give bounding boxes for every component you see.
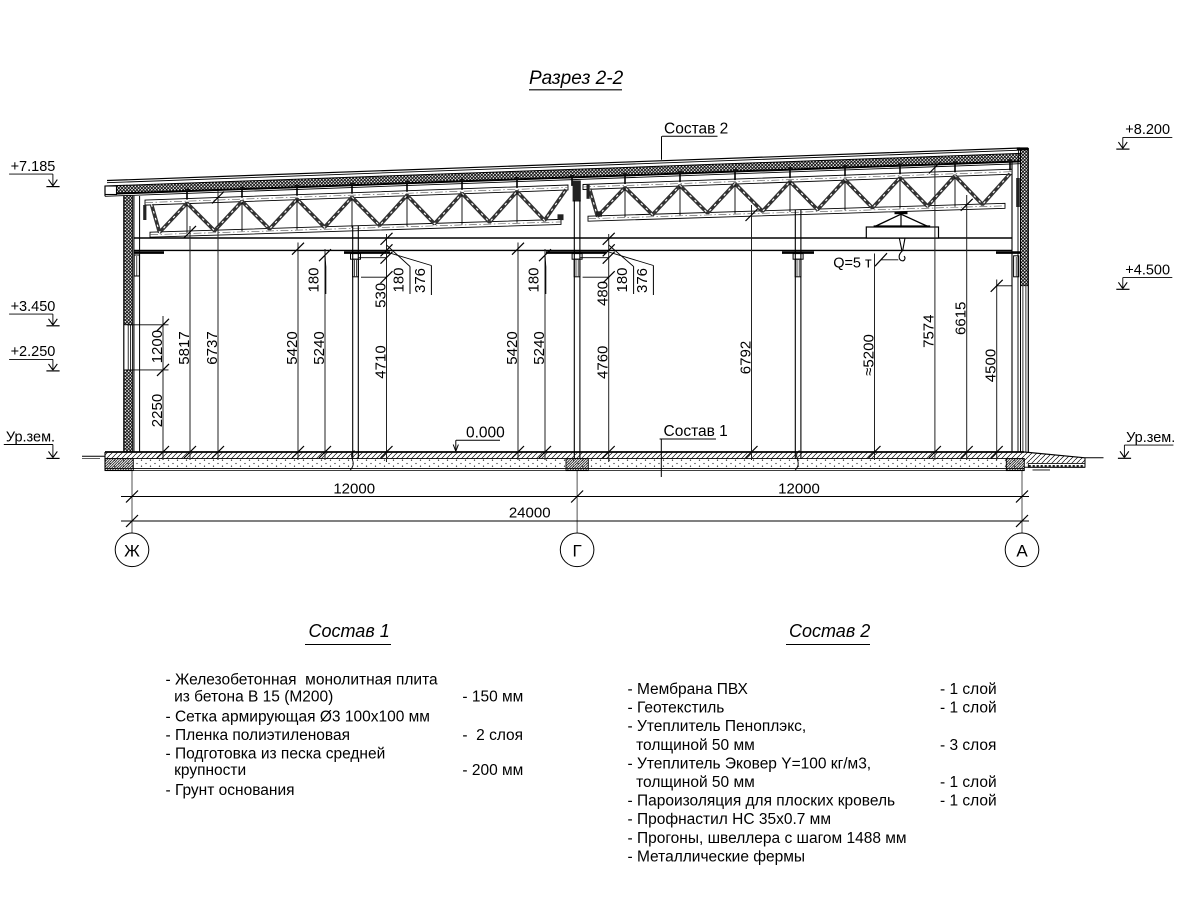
- svg-text:- Утеплитель Эковер Y=100 кг/м: - Утеплитель Эковер Y=100 кг/м3,: [628, 755, 872, 772]
- svg-text:- 3 слоя: - 3 слоя: [940, 737, 996, 754]
- svg-text:4500: 4500: [983, 349, 1000, 382]
- svg-text:480: 480: [595, 281, 612, 306]
- svg-text:Разрез 2-2: Разрез 2-2: [529, 68, 624, 89]
- svg-text:+8.200: +8.200: [1125, 122, 1170, 138]
- svg-text:- 1 слой: - 1 слой: [940, 774, 997, 791]
- svg-text:180: 180: [525, 267, 542, 292]
- svg-text:Состав 1: Состав 1: [309, 621, 390, 641]
- svg-text:Состав 1: Состав 1: [664, 423, 728, 440]
- svg-text:- 1 слой: - 1 слой: [940, 681, 997, 698]
- svg-text:+4.500: +4.500: [1125, 262, 1170, 278]
- svg-text:- Геотекстиль: - Геотекстиль: [628, 700, 725, 717]
- svg-text:Состав 2: Состав 2: [664, 120, 728, 137]
- svg-text:24000: 24000: [509, 504, 551, 521]
- svg-text:А: А: [1016, 541, 1028, 560]
- svg-text:Г: Г: [572, 541, 581, 560]
- svg-text:7574: 7574: [921, 315, 938, 348]
- svg-text:- 200 мм: - 200 мм: [462, 762, 523, 779]
- svg-text:376: 376: [634, 268, 651, 293]
- svg-text:- 1 слой: - 1 слой: [940, 700, 997, 717]
- svg-text:- Сетка армирующая Ø3 100х100: - Сетка армирующая Ø3 100х100 мм: [166, 709, 430, 726]
- svg-text:- Железобетонная монолитная п: - Железобетонная монолитная плита: [166, 671, 438, 688]
- svg-text:- Прогоны, швеллера с шагом 14: - Прогоны, швеллера с шагом 1488 мм: [628, 830, 907, 847]
- svg-text:180: 180: [390, 267, 407, 292]
- svg-text:5240: 5240: [531, 331, 548, 364]
- svg-text:530: 530: [372, 283, 389, 308]
- svg-text:Q=5 т: Q=5 т: [833, 255, 872, 271]
- svg-text:- Металлические фермы: - Металлические фермы: [628, 848, 806, 865]
- svg-text:1200: 1200: [149, 330, 166, 363]
- svg-text:толщиной 50 мм: толщиной 50 мм: [628, 737, 755, 754]
- svg-text:Состав 2: Состав 2: [789, 621, 870, 641]
- svg-text:- Пароизоляция для плоских кро: - Пароизоляция для плоских кровель: [628, 793, 896, 810]
- svg-text:2250: 2250: [149, 394, 166, 427]
- svg-text:+3.450: +3.450: [11, 299, 56, 315]
- svg-text:≈5200: ≈5200: [860, 334, 877, 376]
- svg-text:5240: 5240: [311, 331, 328, 364]
- svg-text:5420: 5420: [504, 331, 521, 364]
- svg-text:Ур.зем.: Ур.зем.: [1126, 430, 1175, 446]
- svg-text:5420: 5420: [284, 331, 301, 364]
- svg-text:Ж: Ж: [124, 541, 140, 560]
- svg-text:4710: 4710: [372, 345, 389, 378]
- svg-text:4760: 4760: [595, 346, 612, 379]
- svg-text:Ур.зем.: Ур.зем.: [6, 429, 55, 445]
- svg-text:крупности: крупности: [166, 762, 247, 779]
- svg-text:- Грунт основания: - Грунт основания: [166, 782, 295, 799]
- svg-text:толщиной 50 мм: толщиной 50 мм: [628, 774, 755, 791]
- svg-text:5817: 5817: [176, 331, 193, 364]
- svg-text:- Мембрана ПВХ: - Мембрана ПВХ: [628, 681, 749, 698]
- svg-text:12000: 12000: [333, 480, 375, 497]
- svg-text:из бетона В 15 (М200): из бетона В 15 (М200): [166, 689, 334, 706]
- svg-text:- Утеплитель Пеноплэкс,: - Утеплитель Пеноплэкс,: [628, 718, 807, 735]
- svg-text:- 2 слоя: - 2 слоя: [462, 727, 523, 744]
- svg-text:- Пленка полиэтиленовая: - Пленка полиэтиленовая: [166, 727, 351, 744]
- svg-text:6615: 6615: [953, 302, 970, 335]
- svg-text:+7.185: +7.185: [11, 159, 56, 175]
- svg-text:180: 180: [305, 267, 322, 292]
- svg-text:+2.250: +2.250: [11, 344, 56, 360]
- svg-text:6792: 6792: [737, 341, 754, 374]
- svg-text:376: 376: [412, 268, 429, 293]
- svg-text:- 150 мм: - 150 мм: [462, 689, 523, 706]
- svg-text:- 1 слой: - 1 слой: [940, 793, 997, 810]
- svg-text:6737: 6737: [204, 331, 221, 364]
- svg-text:12000: 12000: [778, 480, 820, 497]
- svg-text:- Профнастил НС 35х0.7 мм: - Профнастил НС 35х0.7 мм: [628, 811, 832, 828]
- svg-text:- Подготовка из песка средней: - Подготовка из песка средней: [166, 746, 386, 763]
- svg-text:180: 180: [614, 267, 631, 292]
- svg-text:0.000: 0.000: [466, 425, 505, 442]
